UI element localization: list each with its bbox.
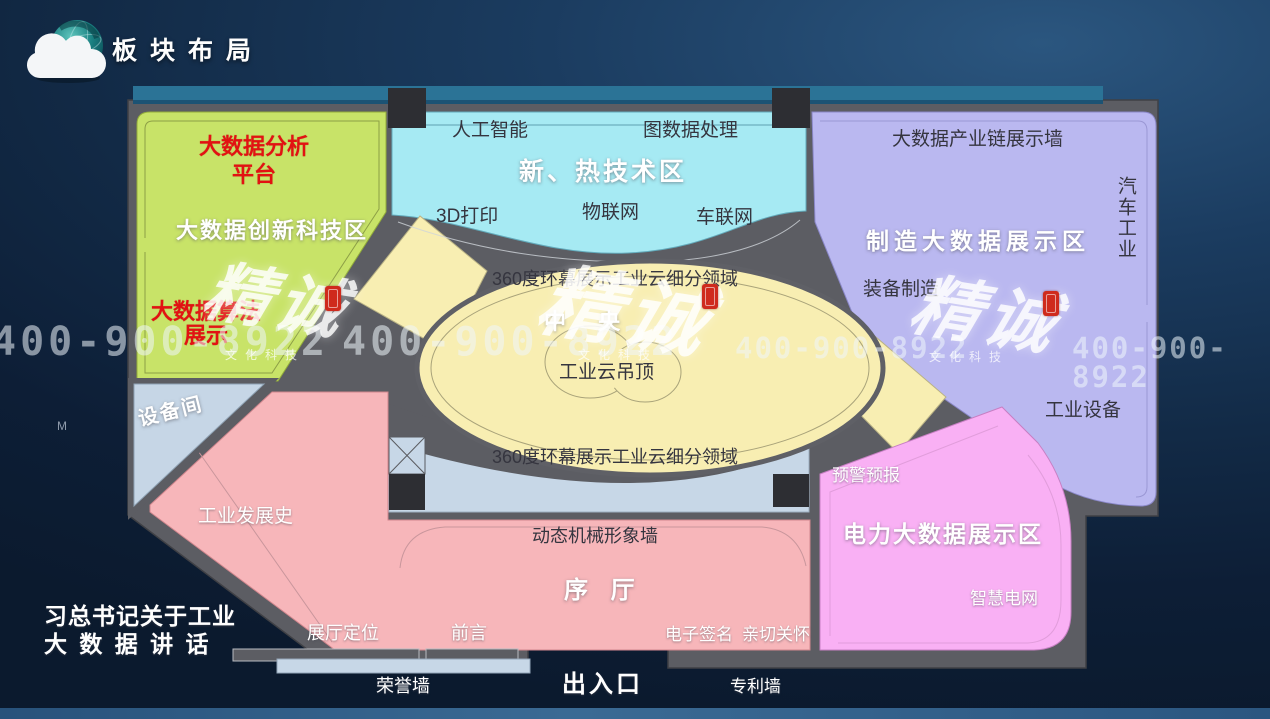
label-mech-wall: 动态机械形象墙 [532,526,658,547]
label-honor-wall: 荣誉墙 [376,676,430,697]
bottom-edge-strip [0,708,1270,719]
zone-title-central: 中 央 [544,309,633,334]
zone-title-new-tech: 新、热技术区 [519,158,687,187]
page-title: 板块布局 [112,31,264,67]
label-graph-data: 图数据处理 [643,120,738,142]
zone-title-power: 电力大数据展示区 [843,521,1043,547]
honor-wall-strip [277,659,530,673]
label-cloud-ceiling: 工业云吊顶 [559,362,654,384]
label-iov: 车联网 [696,207,753,229]
speech-label-line2: 大 数 据 讲 话 [44,631,212,657]
label-equipment-mfg: 装备制造 [863,279,939,301]
speech-label-line1: 习总书记关于工业 [44,603,236,629]
label-patent-wall: 专利墙 [730,677,781,697]
zone-title-manufacturing: 制造大数据展示区 [866,228,1090,254]
top-wall-strip-shadow [133,100,1103,104]
label-industrial-equipment: 工业设备 [1045,400,1121,422]
label-screen-bottom: 360度环幕展示工业云细分领域 [492,447,738,468]
label-bigdata-algorithm: 大数据算法 展示 [146,300,266,348]
label-esignature: 电子签名 [665,625,733,645]
label-warning-forecast: 预警预报 [832,466,900,486]
label-iot: 物联网 [582,202,639,224]
stair-box [389,437,425,474]
label-entrance: 出入口 [562,671,643,699]
label-screen-top: 360度环幕展示工业云细分领域 [492,269,738,290]
label-auto-industry: 汽车工业 [1114,176,1136,260]
label-chain-wall: 大数据产业链展示墙 [892,129,1063,151]
label-bigdata-analysis-platform: 大数据分析 平台 [188,133,320,188]
label-care: 亲切关怀 [742,625,810,645]
slide-canvas: 板块布局 M 习总书记关于工业 大 数 据 讲 话 大数据分析 平台 大数据创新… [0,0,1270,719]
label-preface: 前言 [451,623,487,644]
label-industry-history: 工业发展史 [198,506,293,528]
cloud-globe-icon [14,12,110,84]
label-ai: 人工智能 [452,120,528,142]
label-3d-print: 3D打印 [436,206,498,228]
zone-title-innovation: 大数据创新科技区 [176,218,368,243]
zone-title-prologue-hall: 序 厅 [564,577,643,605]
label-smart-grid: 智慧电网 [970,589,1038,609]
m-marker: M [57,419,67,433]
label-hall-positioning: 展厅定位 [307,623,379,644]
